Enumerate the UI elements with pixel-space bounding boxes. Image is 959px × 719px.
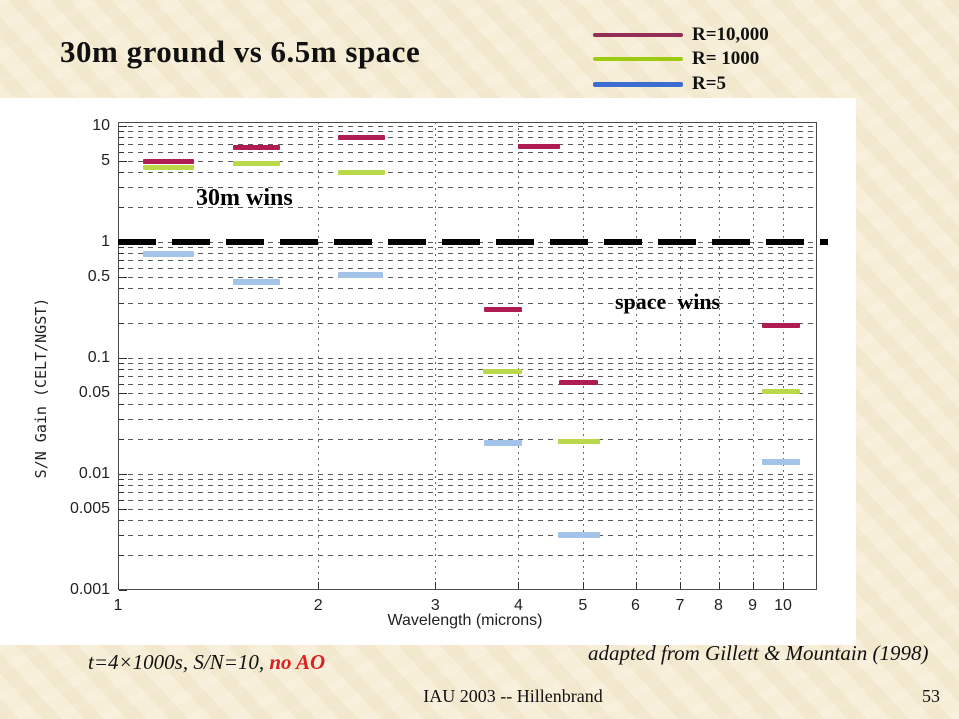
legend-item-r10000: R=10,000 [593, 24, 769, 46]
legend-label-r1000: R= 1000 [692, 48, 759, 70]
legend-line-r1000 [593, 57, 683, 61]
page-title: 30m ground vs 6.5m space [60, 34, 420, 70]
slide: 30m ground vs 6.5m space R=10,000 R= 100… [0, 0, 959, 719]
y-axis-title: S/N Gain (CELT/NGST) [32, 298, 50, 479]
footnote: t=4×1000s, S/N=10, no AO [88, 650, 325, 675]
plot-panel [0, 98, 856, 645]
annotation-space-wins: space wins [615, 289, 720, 315]
annotation-30m-wins: 30m wins [196, 185, 293, 212]
x-axis-title: Wavelength (microns) [387, 612, 542, 630]
legend-line-r5 [593, 82, 683, 87]
footer-title: IAU 2003 -- Hillenbrand [423, 686, 602, 707]
legend-label-r10000: R=10,000 [692, 24, 769, 46]
legend-label-r5: R=5 [692, 73, 726, 95]
legend-line-r10000 [593, 33, 683, 37]
legend-item-r1000: R= 1000 [593, 48, 759, 70]
footnote-no-ao: no AO [269, 650, 325, 674]
legend-item-r5: R=5 [593, 73, 726, 95]
credit-text: adapted from Gillett & Mountain (1998) [588, 641, 928, 666]
footnote-text: t=4×1000s, S/N=10, [88, 650, 269, 674]
page-number: 53 [922, 686, 940, 707]
